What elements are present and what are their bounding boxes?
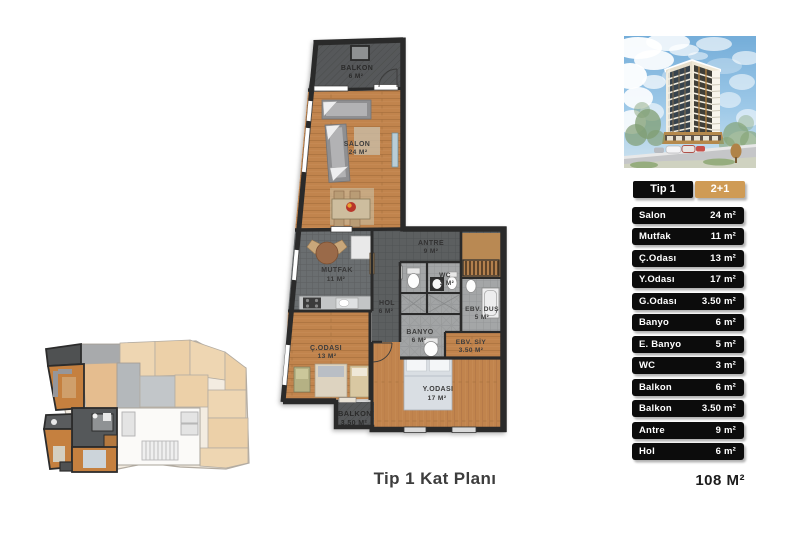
svg-text:5 M²: 5 M² <box>475 314 489 321</box>
svg-text:6 M²: 6 M² <box>412 337 427 344</box>
svg-text:Y.ODASI: Y.ODASI <box>423 386 454 393</box>
svg-text:SALON: SALON <box>344 141 371 148</box>
svg-text:WC: WC <box>439 272 451 279</box>
svg-text:HOL: HOL <box>379 300 395 307</box>
svg-text:3.50 M²: 3.50 M² <box>459 347 483 354</box>
svg-text:ANTRE: ANTRE <box>418 240 444 247</box>
svg-text:13 M²: 13 M² <box>318 353 337 360</box>
svg-text:11 M²: 11 M² <box>327 276 346 283</box>
svg-text:BALKON: BALKON <box>341 65 373 72</box>
svg-text:BALKON: BALKON <box>338 409 372 418</box>
svg-text:9 M²: 9 M² <box>424 248 439 255</box>
svg-text:6 M²: 6 M² <box>379 308 394 315</box>
svg-text:6 M²: 6 M² <box>349 73 364 80</box>
svg-text:24 M²: 24 M² <box>349 149 368 156</box>
svg-text:BANYO: BANYO <box>406 329 433 336</box>
svg-text:17 M²: 17 M² <box>428 395 447 402</box>
svg-text:Ç.ODASI: Ç.ODASI <box>310 345 342 352</box>
svg-text:EBV. DUŞ: EBV. DUŞ <box>465 306 499 313</box>
svg-text:EBV. SİY: EBV. SİY <box>456 338 487 346</box>
svg-text:MUTFAK: MUTFAK <box>321 267 353 274</box>
svg-text:3.50 M²: 3.50 M² <box>341 420 368 427</box>
svg-text:3 M²: 3 M² <box>440 280 454 287</box>
